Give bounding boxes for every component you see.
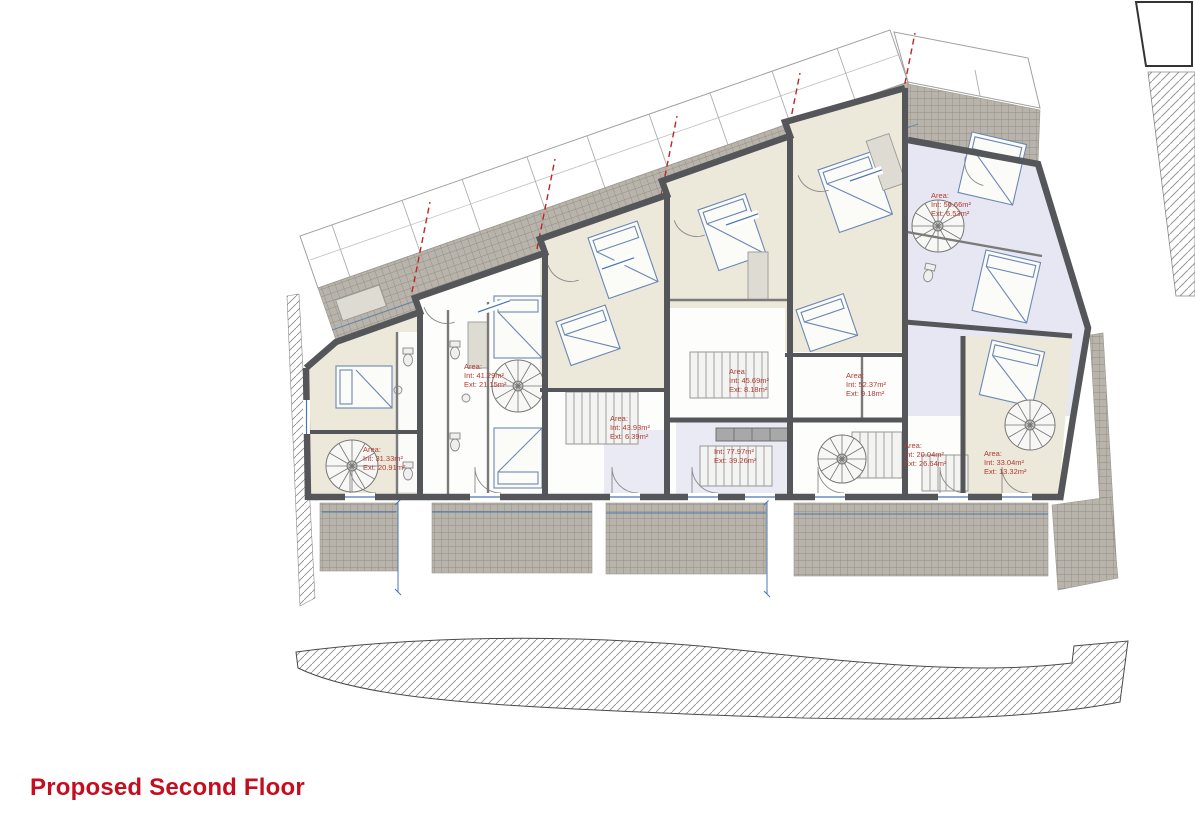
neighbor-hatch-area (1148, 72, 1195, 296)
toilet (450, 433, 460, 451)
spiral-staircase (326, 440, 378, 492)
ground-hatch-band (296, 638, 1128, 719)
window (345, 493, 375, 501)
toilet (403, 348, 413, 366)
window (610, 493, 640, 501)
kitchen-counter (716, 428, 790, 441)
window (938, 493, 968, 501)
sink (462, 394, 470, 402)
spiral-staircase (492, 360, 544, 412)
floorplan-drawing (0, 0, 1195, 815)
spiral-staircase (912, 200, 964, 252)
window (815, 493, 845, 501)
staircase (700, 446, 772, 486)
staircase (690, 352, 768, 398)
page-title: Proposed Second Floor (30, 774, 305, 802)
toilet (450, 341, 460, 359)
window (470, 493, 500, 501)
neighbor-building-outline (1136, 2, 1192, 66)
spiral-staircase (818, 435, 866, 483)
window (303, 400, 310, 434)
window (745, 493, 775, 501)
floorplan-canvas: Area:Int: 31.33m²Ext: 20.91m²Area:Int: 4… (0, 0, 1195, 815)
spiral-staircase (1005, 400, 1055, 450)
window (688, 493, 718, 501)
bed (494, 428, 542, 488)
staircase (566, 392, 638, 444)
toilet (403, 462, 413, 480)
window (1002, 493, 1032, 501)
bed (336, 366, 392, 408)
bed (979, 340, 1044, 407)
